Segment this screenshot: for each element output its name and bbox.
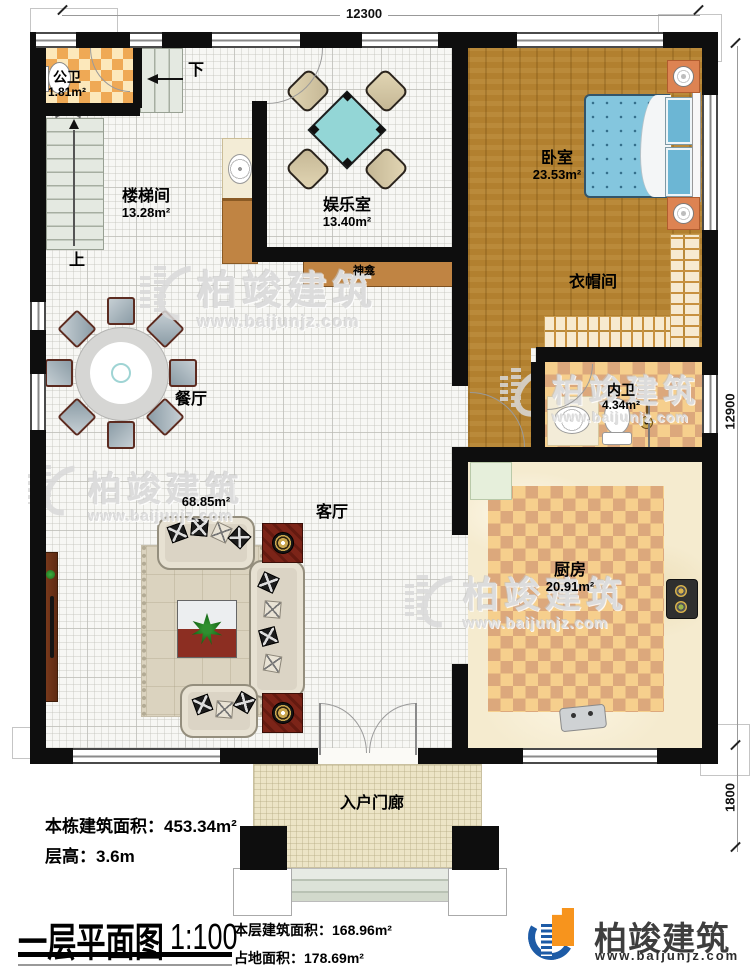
dining-chair <box>107 297 135 325</box>
bed-pillow <box>666 98 692 144</box>
building-area-label: 本栋建筑面积： <box>45 817 164 836</box>
room-label-guest-bath: 公卫 1.81m² <box>48 70 86 99</box>
room-name: 楼梯间 <box>122 188 170 206</box>
window <box>517 32 663 48</box>
floor-height-label: 层高： <box>45 847 96 866</box>
room-area: 4.34m² <box>602 399 640 412</box>
room-label-stairhall: 楼梯间 13.28m² <box>122 188 170 220</box>
room-name: 厨房 <box>546 562 594 580</box>
window <box>30 374 46 430</box>
sofa-pillow <box>263 600 281 618</box>
floor-area-value: 168.96m² <box>332 922 392 938</box>
logo-building-blue <box>541 924 552 956</box>
room-label-shrine: 神龛 <box>353 265 375 277</box>
sink-drain-icon <box>588 711 593 716</box>
window <box>36 32 76 48</box>
room-name: 内卫 <box>602 383 640 399</box>
window <box>702 95 718 230</box>
window <box>130 32 162 48</box>
wall-center-vertical-upper <box>452 48 468 386</box>
nightstand-lamp-icon <box>673 203 694 224</box>
room-area: 20.91m² <box>546 580 594 595</box>
room-label-living: 客厅 <box>316 504 348 522</box>
dim-label-right: 12900 <box>723 379 738 445</box>
window <box>362 32 438 48</box>
entry-porch-floor <box>253 764 482 868</box>
wall-guest-bath-bottom <box>30 103 140 116</box>
window <box>212 32 300 48</box>
room-name: 入户门廊 <box>340 795 404 813</box>
wardrobe-right <box>670 234 700 348</box>
ensuite-toilet-tank-icon <box>602 432 632 445</box>
window <box>702 375 718 433</box>
window <box>523 748 657 764</box>
room-name: 娱乐室 <box>323 197 371 215</box>
floor-height-value: 3.6m <box>96 847 135 866</box>
wall-gameroom-left <box>252 101 267 251</box>
floor-area-line: 本层建筑面积：168.96m² <box>234 920 392 940</box>
dim-label-top: 12300 <box>340 6 388 21</box>
porch-column <box>240 826 287 870</box>
dining-chair <box>169 359 197 387</box>
porch-steps <box>290 868 450 902</box>
table-lamp-icon <box>272 532 294 554</box>
room-area: 23.53m² <box>533 168 581 183</box>
kitchen-sink <box>559 704 607 733</box>
table-lamp-icon <box>272 702 294 724</box>
stove-burner-icon <box>675 601 687 613</box>
porch-side-right <box>448 868 507 916</box>
fridge <box>470 462 512 500</box>
wall-gameroom-bottom <box>252 247 455 262</box>
floor-height-line: 层高：3.6m <box>45 842 135 867</box>
dining-chair <box>107 421 135 449</box>
staircase <box>46 118 104 250</box>
washbasin-sink-icon <box>228 154 252 184</box>
land-area-line: 占地面积：178.69m² <box>234 948 364 968</box>
brand-logo-icon <box>528 906 588 966</box>
bed-pillow <box>666 148 692 196</box>
room-label-bedroom: 卧室 23.53m² <box>533 150 581 182</box>
bed-headboard <box>692 92 701 202</box>
sofa-pillow <box>263 654 283 674</box>
tv-icon <box>50 596 54 658</box>
stove-burner-icon <box>675 585 687 597</box>
floor-plan-page: 神龛 <box>0 0 750 979</box>
room-area: 13.40m² <box>323 215 371 230</box>
wall-kitchen-top <box>452 447 702 462</box>
door-leaf <box>319 703 321 755</box>
title-underline-thin <box>18 964 232 966</box>
window <box>30 302 46 330</box>
dim-line-right <box>737 46 738 852</box>
plan-title: 一层平面图 <box>18 910 164 968</box>
room-area: 68.85m² <box>182 495 230 510</box>
room-label-cloakroom: 衣帽间 <box>569 274 617 292</box>
window <box>73 748 220 764</box>
room-name: 卧室 <box>533 150 581 168</box>
room-area-living: 68.85m² <box>182 495 230 510</box>
land-area-value: 178.69m² <box>304 950 364 966</box>
room-label-porch: 入户门廊 <box>340 795 404 813</box>
room-area: 13.28m² <box>122 206 170 221</box>
watermark-text: 柏竣建筑 www.baijunjz.com <box>197 258 377 332</box>
title-underline-thick <box>18 952 232 957</box>
dining-table-center <box>111 363 131 383</box>
stair-up-arrow <box>69 119 79 129</box>
room-name: 衣帽间 <box>569 274 617 292</box>
wall-ensuite-left <box>531 362 545 448</box>
stair-down-arrow-line <box>157 78 183 80</box>
room-label-ensuite: 内卫 4.34m² <box>602 383 640 412</box>
room-name: 客厅 <box>316 504 348 522</box>
wall-cloakroom-bottom <box>536 347 702 362</box>
room-label-dining: 餐厅 <box>175 391 207 409</box>
small-plant-icon <box>46 570 55 579</box>
dim-label-porch: 1800 <box>723 765 738 831</box>
porch-column <box>452 826 499 870</box>
dim-tick <box>730 38 741 49</box>
room-name: 餐厅 <box>175 391 207 409</box>
room-label-kitchen: 厨房 20.91m² <box>546 562 594 594</box>
stair-up-label: 上 <box>69 252 85 270</box>
land-area-label: 占地面积： <box>234 950 304 966</box>
wall-guest-bath-right <box>133 48 142 108</box>
porch-side-left <box>233 868 292 916</box>
dining-chair <box>45 359 73 387</box>
wall-center-vertical-lower <box>452 664 468 748</box>
brand-website: www.baijunjz.com <box>595 948 739 963</box>
room-label-gameroom: 娱乐室 13.40m² <box>323 197 371 229</box>
nightstand-lamp-icon <box>673 66 694 87</box>
dim-tick <box>730 842 741 853</box>
stair-guide-line <box>73 130 75 246</box>
stair-down-label: 下 <box>188 62 204 80</box>
sofa-pillow <box>215 700 233 718</box>
building-area-line: 本栋建筑面积：453.34m² <box>45 812 237 837</box>
building-area-value: 453.34m² <box>164 817 237 836</box>
door-leaf <box>415 703 417 755</box>
room-area: 1.81m² <box>48 86 86 99</box>
floor-area-label: 本层建筑面积： <box>234 922 332 938</box>
room-name: 公卫 <box>48 70 86 86</box>
